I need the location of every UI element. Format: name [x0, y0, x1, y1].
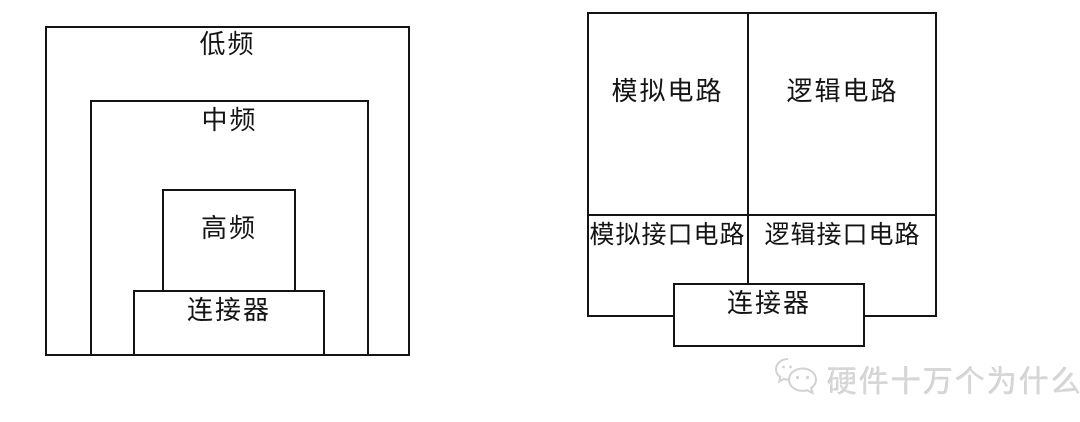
analog-circuit-label: 模拟电路 [587, 78, 748, 107]
circuit-region-box [587, 12, 937, 317]
diagram-canvas: 低频 中频 高频 连接器 模拟电路 逻辑电路 模拟接口电路 逻辑接口电路 连接器 [0, 0, 1080, 422]
analog-interface-label: 模拟接口电路 [587, 222, 748, 250]
logic-circuit-label: 逻辑电路 [748, 78, 937, 107]
watermark-text: 硬件十万个为什么 [827, 357, 1080, 401]
right-connector-label: 连接器 [673, 290, 865, 319]
left-connector-label: 连接器 [133, 297, 325, 326]
watermark: 硬件十万个为什么 [773, 356, 1080, 402]
chat-bubbles-icon [773, 356, 821, 402]
low-freq-label: 低频 [45, 31, 410, 60]
horizontal-divider [587, 214, 937, 216]
high-freq-label: 高频 [162, 215, 296, 244]
mid-freq-label: 中频 [90, 107, 369, 136]
logic-interface-label: 逻辑接口电路 [748, 222, 937, 250]
